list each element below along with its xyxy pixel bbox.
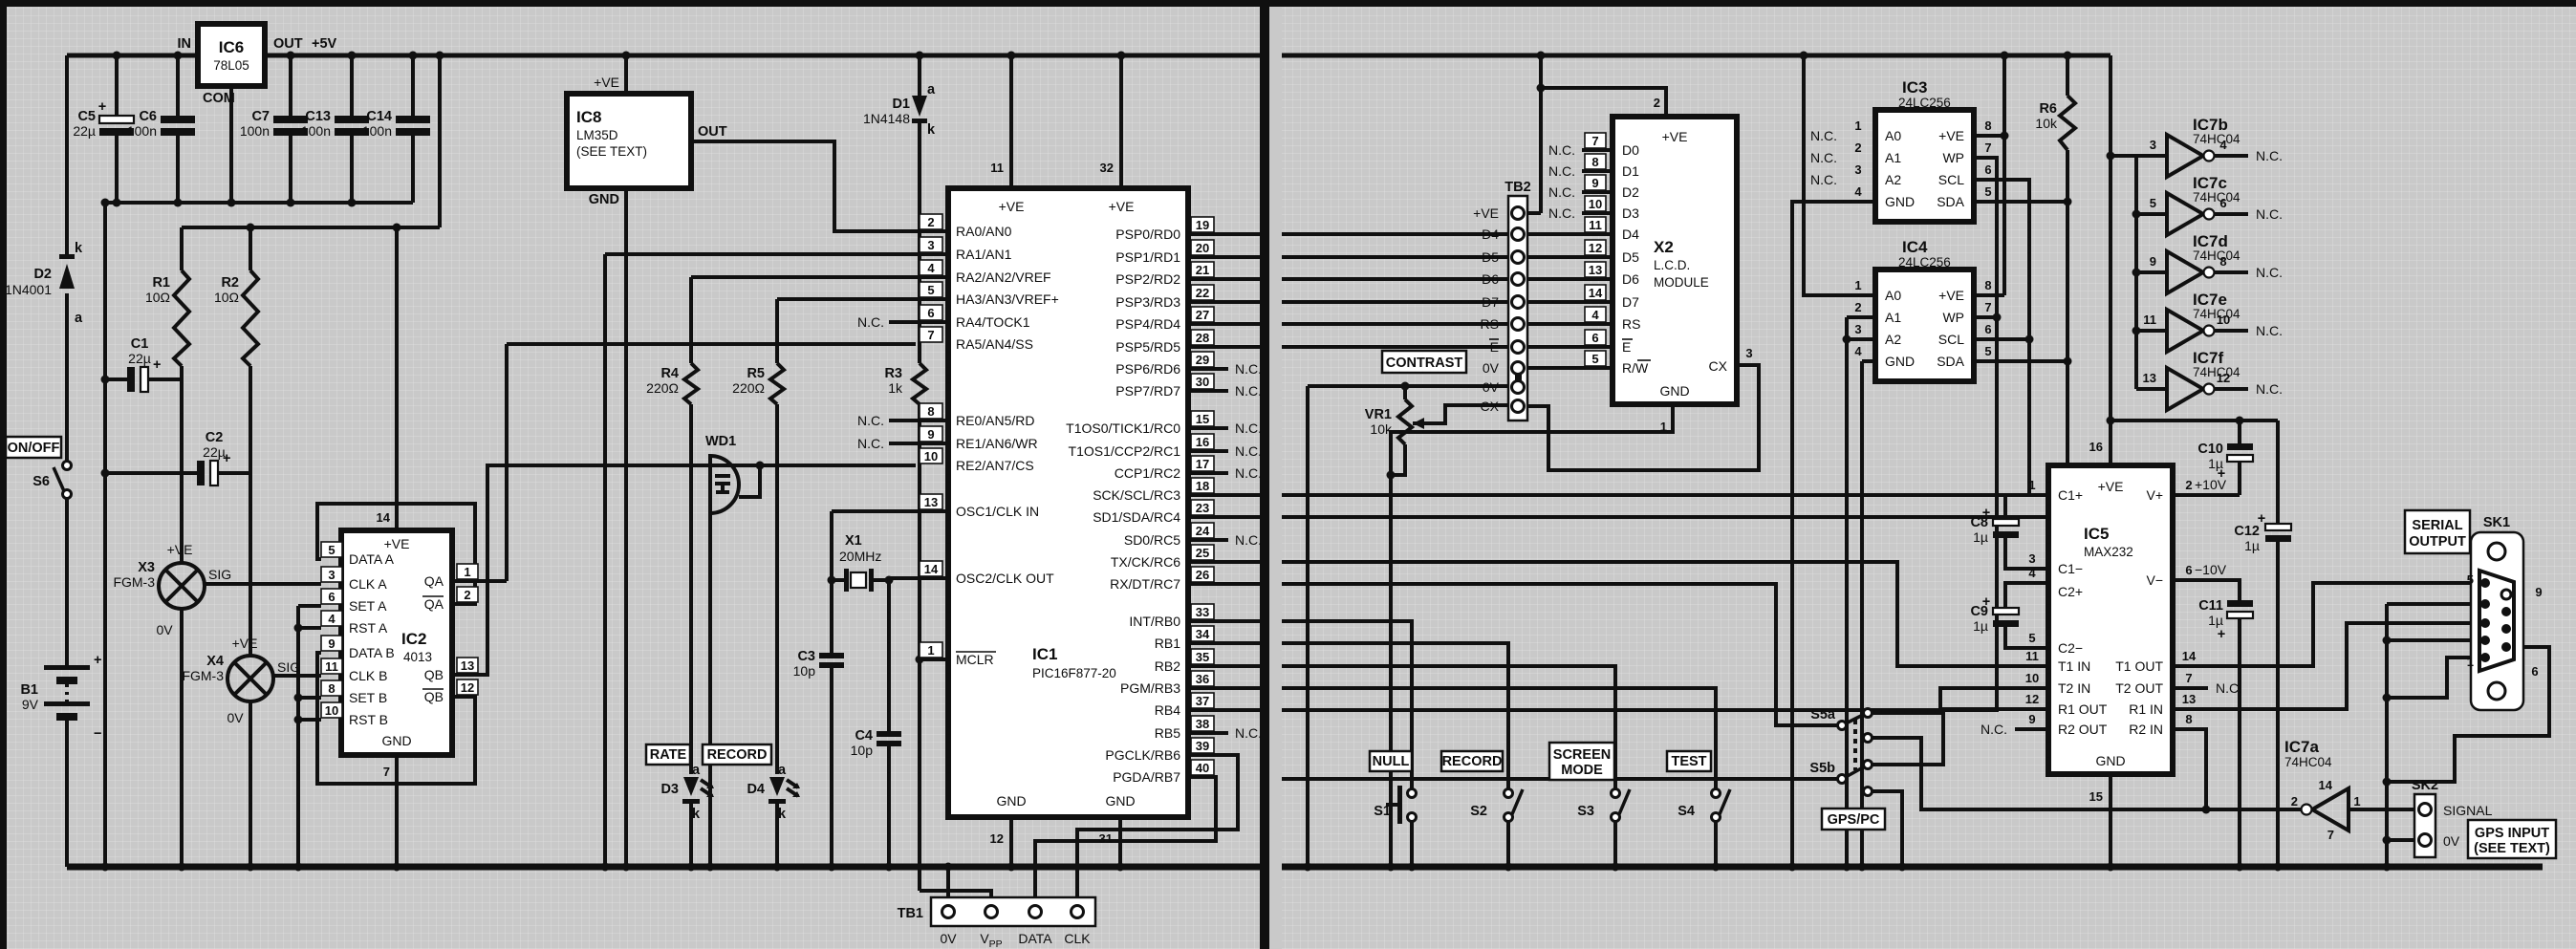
r3-ref: R3 bbox=[884, 366, 902, 381]
svg-text:0V: 0V bbox=[2443, 833, 2460, 849]
svg-text:31: 31 bbox=[1099, 831, 1113, 846]
ic2-p5: 5 bbox=[328, 543, 335, 557]
svg-text:PSP3/RD3: PSP3/RD3 bbox=[1115, 294, 1180, 310]
svg-text:GND: GND bbox=[1885, 354, 1915, 369]
frame-top bbox=[0, 0, 2576, 7]
svg-text:N.C.: N.C. bbox=[2256, 265, 2283, 280]
svg-text:8: 8 bbox=[1984, 119, 1991, 133]
svg-text:RB2: RB2 bbox=[1155, 658, 1180, 674]
b1-plus: + bbox=[94, 653, 101, 668]
vr1-val: 10k bbox=[1370, 421, 1393, 437]
svg-text:N.C.: N.C. bbox=[1235, 383, 1262, 399]
ic2-clka: CLK A bbox=[349, 576, 387, 592]
svg-text:D6: D6 bbox=[1622, 271, 1639, 287]
resistor-r3 bbox=[913, 363, 926, 404]
wd1-ref: WD1 bbox=[705, 434, 736, 449]
svg-text:GND: GND bbox=[1659, 383, 1689, 399]
schematic-canvas: IC6 78L05 IN OUT +5V COM C522µ+ C6100n C… bbox=[0, 0, 2576, 949]
svg-text:15: 15 bbox=[1196, 412, 1209, 426]
ic2-p9: 9 bbox=[328, 636, 335, 651]
x3-val: FGM-3 bbox=[113, 574, 155, 590]
ic2-p10: 10 bbox=[325, 703, 338, 718]
svg-text:N.C.: N.C. bbox=[2256, 148, 2283, 163]
svg-text:5: 5 bbox=[2028, 631, 2035, 645]
svg-text:7: 7 bbox=[2327, 828, 2334, 842]
svg-text:RECORD: RECORD bbox=[1442, 754, 1503, 769]
svg-text:17: 17 bbox=[1196, 457, 1209, 471]
svg-text:A1: A1 bbox=[1885, 310, 1901, 325]
ic6-com-label: COM bbox=[203, 91, 235, 106]
svg-text:RB4: RB4 bbox=[1155, 702, 1180, 718]
svg-text:24: 24 bbox=[1196, 524, 1210, 538]
svg-text:SCL: SCL bbox=[1938, 332, 1964, 347]
svg-text:R2 IN: R2 IN bbox=[2129, 722, 2163, 737]
svg-text:3: 3 bbox=[1745, 346, 1752, 360]
ic8-out: OUT bbox=[698, 124, 727, 140]
c14-ref: C14 bbox=[366, 109, 392, 124]
svg-text:8: 8 bbox=[1591, 155, 1598, 169]
sk1-body bbox=[2471, 532, 2523, 710]
svg-text:5: 5 bbox=[1591, 352, 1598, 366]
svg-text:PSP2/RD2: PSP2/RD2 bbox=[1115, 271, 1180, 287]
svg-text:E: E bbox=[1490, 339, 1499, 355]
svg-text:D1: D1 bbox=[1622, 163, 1639, 179]
inverter-ic7a bbox=[2302, 788, 2349, 830]
svg-text:S5a: S5a bbox=[1810, 707, 1836, 723]
c1-val: 22µ bbox=[128, 351, 151, 366]
c5-plus: + bbox=[98, 99, 106, 115]
svg-text:N.C.: N.C. bbox=[2256, 323, 2283, 338]
ic2-part: 4013 bbox=[403, 650, 432, 664]
c10-ref: C10 bbox=[2197, 442, 2223, 457]
rate-label: RATE bbox=[650, 747, 687, 763]
svg-text:8: 8 bbox=[2185, 712, 2192, 726]
resistor-r6 bbox=[2060, 96, 2075, 150]
svg-text:T2 OUT: T2 OUT bbox=[2115, 680, 2163, 696]
ic2-p1: 1 bbox=[464, 565, 470, 579]
svg-text:SDA: SDA bbox=[1937, 354, 1964, 369]
svg-text:WP: WP bbox=[1942, 310, 1964, 325]
svg-text:N.C.: N.C. bbox=[1548, 142, 1575, 158]
svg-text:T1OS0/TICK1/RC0: T1OS0/TICK1/RC0 bbox=[1066, 421, 1180, 436]
switch-s4 bbox=[1712, 789, 1731, 822]
capacitor-c4 bbox=[877, 731, 901, 746]
svg-text:9: 9 bbox=[927, 427, 934, 442]
svg-text:4: 4 bbox=[2219, 138, 2227, 152]
svg-text:40: 40 bbox=[1196, 761, 1209, 775]
capacitor-c1 bbox=[127, 367, 148, 392]
ic2-n14: 14 bbox=[377, 510, 391, 525]
svg-text:D4: D4 bbox=[1622, 226, 1639, 242]
ic2-rsta: RST A bbox=[349, 620, 388, 636]
c12-ref: C12 bbox=[2234, 524, 2260, 539]
svg-text:C2+: C2+ bbox=[2058, 584, 2083, 599]
svg-text:E: E bbox=[1622, 339, 1631, 355]
svg-text:12: 12 bbox=[990, 831, 1004, 846]
svg-text:WP: WP bbox=[1942, 150, 1964, 165]
svg-text:4: 4 bbox=[1854, 184, 1862, 199]
svg-text:GPS/PC: GPS/PC bbox=[1828, 812, 1880, 828]
ic6-out-label: OUT bbox=[273, 36, 303, 52]
ic8-ref: IC8 bbox=[576, 108, 601, 126]
ic8-ve: +VE bbox=[594, 75, 619, 90]
switch-s5b bbox=[1838, 761, 1872, 796]
svg-text:11: 11 bbox=[1589, 218, 1602, 232]
svg-text:D4: D4 bbox=[1482, 226, 1499, 242]
svg-text:39: 39 bbox=[1196, 739, 1209, 753]
svg-text:SDA: SDA bbox=[1937, 194, 1964, 209]
svg-text:N.C.: N.C. bbox=[857, 413, 884, 428]
svg-text:D0: D0 bbox=[1622, 142, 1639, 158]
ic2-setb: SET B bbox=[349, 690, 387, 705]
x3-0v: 0V bbox=[156, 622, 173, 637]
svg-text:RB1: RB1 bbox=[1155, 636, 1180, 651]
svg-text:16: 16 bbox=[2089, 440, 2103, 454]
svg-text:3: 3 bbox=[1854, 322, 1861, 336]
svg-text:8: 8 bbox=[1984, 278, 1991, 292]
ic2-clkb: CLK B bbox=[349, 668, 387, 683]
ic2-datab: DATA B bbox=[349, 645, 395, 660]
svg-text:MCLR: MCLR bbox=[956, 652, 994, 667]
r6-ref: R6 bbox=[2039, 101, 2057, 117]
x4-0v: 0V bbox=[227, 710, 244, 725]
svg-text:PGM/RB3: PGM/RB3 bbox=[1120, 680, 1180, 696]
svg-text:1: 1 bbox=[2028, 478, 2035, 492]
ic2-ve: +VE bbox=[384, 536, 410, 551]
svg-text:OSC1/CLK IN: OSC1/CLK IN bbox=[956, 504, 1039, 519]
c5-ref: C5 bbox=[77, 109, 96, 124]
tb2-0v-link bbox=[1515, 374, 1522, 382]
svg-text:D2: D2 bbox=[1622, 184, 1639, 200]
svg-text:D3: D3 bbox=[1622, 205, 1639, 221]
svg-text:+: + bbox=[1982, 594, 1990, 610]
x1-val: 20MHz bbox=[839, 549, 881, 564]
svg-text:V−: V− bbox=[2146, 572, 2163, 588]
ic2-qa: QA bbox=[424, 573, 444, 589]
svg-text:S1: S1 bbox=[1374, 804, 1391, 819]
svg-text:PSP4/RD4: PSP4/RD4 bbox=[1115, 316, 1180, 332]
svg-text:S3: S3 bbox=[1577, 804, 1594, 819]
svg-text:N.C.: N.C. bbox=[1235, 465, 1262, 481]
x1-ref: X1 bbox=[845, 533, 862, 549]
svg-text:A1: A1 bbox=[1885, 150, 1901, 165]
svg-text:S2: S2 bbox=[1470, 804, 1487, 819]
svg-text:D6: D6 bbox=[1482, 271, 1499, 287]
ic2-p6: 6 bbox=[328, 590, 335, 604]
svg-text:PSP5/RD5: PSP5/RD5 bbox=[1115, 339, 1180, 355]
capacitor-c11 bbox=[2227, 600, 2253, 618]
battery-b1 bbox=[44, 665, 90, 721]
svg-text:MAX232: MAX232 bbox=[2084, 545, 2133, 559]
svg-text:CX: CX bbox=[1481, 399, 1500, 414]
svg-text:3: 3 bbox=[2150, 138, 2156, 152]
d2-k: k bbox=[75, 241, 83, 256]
svg-text:5: 5 bbox=[2150, 196, 2156, 210]
capacitor-c10 bbox=[2227, 443, 2253, 462]
svg-text:SCL: SCL bbox=[1938, 172, 1964, 187]
d3-ref: D3 bbox=[660, 782, 679, 797]
svg-text:3: 3 bbox=[2028, 551, 2035, 566]
svg-text:15: 15 bbox=[2089, 789, 2103, 804]
ic1-part: PIC16F877-20 bbox=[1032, 666, 1116, 680]
svg-text:24LC256: 24LC256 bbox=[1898, 255, 1951, 270]
svg-text:11: 11 bbox=[990, 161, 1004, 175]
contrast-label: CONTRAST bbox=[1386, 356, 1463, 371]
ic2-p12: 12 bbox=[461, 680, 474, 695]
svg-text:CLK: CLK bbox=[1064, 931, 1091, 946]
svg-text:1µ: 1µ bbox=[2208, 613, 2223, 628]
svg-text:10: 10 bbox=[2025, 671, 2039, 685]
d1-ref: D1 bbox=[892, 97, 910, 112]
c4-val: 10p bbox=[851, 743, 874, 758]
switch-s2 bbox=[1504, 789, 1524, 822]
svg-text:1µ: 1µ bbox=[1973, 618, 1988, 634]
svg-text:S5b: S5b bbox=[1809, 761, 1835, 776]
ic2-p11: 11 bbox=[325, 659, 338, 674]
svg-text:L.C.D.: L.C.D. bbox=[1654, 258, 1690, 272]
svg-text:+VE: +VE bbox=[1473, 205, 1499, 221]
r5-val: 220Ω bbox=[732, 380, 765, 396]
svg-text:N.C.: N.C. bbox=[1235, 532, 1262, 548]
r3-val: 1k bbox=[888, 380, 903, 396]
svg-text:1: 1 bbox=[2353, 794, 2360, 809]
svg-text:S4: S4 bbox=[1678, 804, 1695, 819]
svg-text:T1 OUT: T1 OUT bbox=[2115, 658, 2163, 674]
svg-text:MODULE: MODULE bbox=[1654, 275, 1709, 290]
svg-text:C1+: C1+ bbox=[2058, 487, 2083, 503]
svg-text:74HC04: 74HC04 bbox=[2193, 132, 2240, 146]
svg-text:T2 IN: T2 IN bbox=[2058, 680, 2090, 696]
led-d4 bbox=[768, 777, 800, 804]
b1-ref: B1 bbox=[20, 682, 38, 698]
svg-text:GND: GND bbox=[1885, 194, 1915, 209]
svg-text:RB5: RB5 bbox=[1155, 725, 1180, 741]
ic2-p4: 4 bbox=[328, 612, 336, 626]
svg-text:N.C.: N.C. bbox=[1548, 205, 1575, 221]
crystal-x1 bbox=[844, 569, 874, 592]
c11-ref: C11 bbox=[2198, 598, 2223, 614]
d1-k: k bbox=[927, 122, 936, 138]
svg-text:RX/DT/RC7: RX/DT/RC7 bbox=[1110, 576, 1180, 592]
x2-ref: X2 bbox=[1654, 238, 1674, 256]
svg-text:2: 2 bbox=[1854, 140, 1861, 155]
ic5-ref: IC5 bbox=[2084, 525, 2109, 543]
d4-ref: D4 bbox=[747, 782, 765, 797]
svg-text:N.C.: N.C. bbox=[857, 436, 884, 451]
svg-text:CCP1/RC2: CCP1/RC2 bbox=[1115, 465, 1180, 481]
c7-val: 100n bbox=[240, 123, 270, 139]
svg-text:+: + bbox=[2258, 511, 2265, 527]
svg-text:1: 1 bbox=[1854, 119, 1861, 133]
svg-text:R1 OUT: R1 OUT bbox=[2058, 701, 2108, 717]
svg-text:7: 7 bbox=[927, 328, 934, 342]
svg-text:+VE: +VE bbox=[1662, 129, 1688, 144]
svg-text:5: 5 bbox=[927, 283, 934, 297]
x3-sig: SIG bbox=[208, 567, 231, 582]
c13-ref: C13 bbox=[305, 109, 331, 124]
ic6-in-label: IN bbox=[178, 36, 192, 52]
p10v-label: +10V bbox=[2195, 477, 2227, 492]
resistor-r4 bbox=[684, 363, 698, 404]
svg-text:A2: A2 bbox=[1885, 332, 1901, 347]
d4-a: a bbox=[778, 763, 787, 778]
svg-text:RA4/TOCK1: RA4/TOCK1 bbox=[956, 314, 1030, 330]
svg-text:D7: D7 bbox=[1622, 294, 1639, 310]
svg-text:10: 10 bbox=[924, 449, 938, 464]
svg-text:16: 16 bbox=[1196, 435, 1209, 449]
capacitor-c14 bbox=[396, 116, 430, 136]
svg-text:N.C.: N.C. bbox=[1235, 443, 1262, 459]
svg-text:C1−: C1− bbox=[2058, 561, 2083, 576]
svg-text:HA3/AN3/VREF+: HA3/AN3/VREF+ bbox=[956, 291, 1059, 307]
svg-text:N.C.: N.C. bbox=[857, 314, 884, 330]
x3-ref: X3 bbox=[138, 560, 155, 575]
svg-text:D5: D5 bbox=[1622, 249, 1639, 265]
svg-text:N.C.: N.C. bbox=[1548, 163, 1575, 179]
svg-text:4: 4 bbox=[2028, 566, 2036, 580]
ic2-dataa: DATA A bbox=[349, 551, 395, 567]
svg-text:+VE: +VE bbox=[1938, 288, 1964, 303]
svg-text:+VE: +VE bbox=[1938, 128, 1964, 143]
c2-plus: + bbox=[223, 451, 230, 466]
ic4-ref: IC4 bbox=[1902, 238, 1928, 256]
svg-text:RS: RS bbox=[1622, 316, 1640, 332]
svg-text:SCREEN: SCREEN bbox=[1553, 747, 1611, 763]
svg-text:2: 2 bbox=[2291, 794, 2298, 809]
x2-rw: R/W bbox=[1622, 360, 1649, 376]
svg-text:(SEE TEXT): (SEE TEXT) bbox=[2474, 841, 2550, 856]
r1-ref: R1 bbox=[152, 275, 170, 291]
c1-ref: C1 bbox=[131, 336, 149, 352]
svg-text:2: 2 bbox=[927, 215, 934, 229]
svg-text:24LC256: 24LC256 bbox=[1898, 96, 1951, 110]
svg-text:6: 6 bbox=[1984, 162, 1991, 177]
svg-text:N.C.: N.C. bbox=[1810, 128, 1837, 143]
page-gap bbox=[1269, 0, 1282, 949]
svg-text:4: 4 bbox=[927, 261, 935, 275]
svg-text:7: 7 bbox=[1984, 300, 1991, 314]
svg-text:4: 4 bbox=[1854, 344, 1862, 358]
ic8-note: (SEE TEXT) bbox=[576, 144, 647, 159]
switch-s3 bbox=[1612, 789, 1631, 822]
svg-text:10: 10 bbox=[1589, 197, 1602, 211]
svg-text:4: 4 bbox=[1591, 308, 1599, 322]
svg-text:13: 13 bbox=[924, 495, 938, 509]
svg-text:RE2/AN7/CS: RE2/AN7/CS bbox=[956, 458, 1034, 473]
svg-text:12: 12 bbox=[2217, 371, 2230, 385]
r4-val: 220Ω bbox=[646, 380, 679, 396]
svg-text:6: 6 bbox=[2531, 664, 2538, 679]
s6-ref: S6 bbox=[32, 474, 50, 489]
ic2-p13: 13 bbox=[461, 658, 474, 673]
svg-text:9: 9 bbox=[1591, 176, 1598, 190]
ic2-qb: QB bbox=[424, 667, 444, 682]
ic8-gnd: GND bbox=[589, 192, 619, 207]
c13-val: 100n bbox=[301, 123, 331, 139]
x3-ve: +VE bbox=[167, 542, 193, 557]
svg-text:9: 9 bbox=[2535, 585, 2542, 599]
svg-text:R1 IN: R1 IN bbox=[2129, 701, 2163, 717]
svg-text:T1 IN: T1 IN bbox=[2058, 658, 2090, 674]
svg-text:INT/RB0: INT/RB0 bbox=[1129, 614, 1180, 629]
svg-text:1µ: 1µ bbox=[1973, 529, 1988, 545]
c5-val: 22µ bbox=[73, 123, 96, 139]
svg-text:13: 13 bbox=[1589, 263, 1602, 277]
svg-text:SERIAL: SERIAL bbox=[2412, 518, 2462, 533]
svg-text:1: 1 bbox=[927, 643, 934, 658]
ic2-qabar: QA bbox=[424, 596, 444, 612]
r6-val: 10k bbox=[2035, 116, 2058, 131]
b1-minus: − bbox=[94, 726, 101, 742]
svg-text:DATA: DATA bbox=[1018, 931, 1052, 946]
ic2-seta: SET A bbox=[349, 598, 387, 614]
onoff-label: ON/OFF bbox=[8, 441, 60, 456]
svg-text:37: 37 bbox=[1196, 694, 1209, 708]
svg-text:CX: CX bbox=[1709, 358, 1728, 374]
d1-a: a bbox=[927, 82, 936, 97]
svg-text:PGDA/RB7: PGDA/RB7 bbox=[1113, 769, 1180, 785]
record-led-label: RECORD bbox=[707, 747, 768, 763]
ic3-ref: IC3 bbox=[1902, 78, 1927, 97]
sk2-ref: SK2 bbox=[2412, 778, 2438, 793]
sensor-x3 bbox=[159, 563, 205, 609]
svg-text:27: 27 bbox=[1196, 308, 1209, 322]
svg-text:PSP0/RD0: PSP0/RD0 bbox=[1115, 226, 1180, 242]
c3-val: 10p bbox=[793, 663, 816, 679]
svg-text:N.C.: N.C. bbox=[1235, 421, 1262, 436]
resistor-r1 bbox=[174, 270, 189, 366]
svg-text:RA0/AN0: RA0/AN0 bbox=[956, 224, 1012, 239]
svg-text:RE0/AN5/RD: RE0/AN5/RD bbox=[956, 413, 1034, 428]
svg-text:N.C.: N.C. bbox=[1810, 150, 1837, 165]
c6-ref: C6 bbox=[139, 109, 157, 124]
c4-ref: C4 bbox=[855, 728, 873, 744]
svg-text:6: 6 bbox=[1591, 331, 1598, 345]
d2-ref: D2 bbox=[33, 267, 52, 282]
x4-val: FGM-3 bbox=[182, 668, 224, 683]
svg-text:7: 7 bbox=[2185, 671, 2192, 685]
svg-text:9: 9 bbox=[2150, 254, 2156, 269]
svg-text:SD1/SDA/RC4: SD1/SDA/RC4 bbox=[1093, 509, 1180, 525]
svg-text:+: + bbox=[2218, 627, 2225, 642]
d3-a: a bbox=[692, 763, 701, 778]
svg-text:0V: 0V bbox=[1483, 379, 1500, 395]
svg-text:GPS INPUT: GPS INPUT bbox=[2475, 826, 2549, 841]
svg-text:21: 21 bbox=[1196, 263, 1209, 277]
svg-text:34: 34 bbox=[1196, 627, 1210, 641]
svg-text:30: 30 bbox=[1196, 375, 1209, 389]
ic2-rstb: RST B bbox=[349, 712, 388, 727]
c2-ref: C2 bbox=[206, 430, 224, 445]
capacitor-c6 bbox=[161, 116, 195, 136]
svg-text:6: 6 bbox=[927, 306, 934, 320]
svg-text:OSC2/CLK OUT: OSC2/CLK OUT bbox=[956, 571, 1054, 586]
svg-text:23: 23 bbox=[1196, 501, 1209, 515]
svg-text:RA2/AN2/VREF: RA2/AN2/VREF bbox=[956, 270, 1051, 285]
svg-text:6: 6 bbox=[2185, 563, 2192, 577]
svg-text:18: 18 bbox=[1196, 479, 1209, 493]
svg-text:29: 29 bbox=[1196, 353, 1209, 367]
ic2-p2: 2 bbox=[464, 588, 470, 602]
svg-text:3: 3 bbox=[927, 238, 934, 252]
svg-text:5: 5 bbox=[1984, 344, 1991, 358]
svg-text:1µ: 1µ bbox=[2244, 538, 2260, 553]
svg-text:NULL: NULL bbox=[1373, 754, 1410, 769]
r2-ref: R2 bbox=[221, 275, 239, 291]
svg-text:9: 9 bbox=[2028, 712, 2035, 726]
ic8-part: LM35D bbox=[576, 128, 618, 142]
svg-text:A2: A2 bbox=[1885, 172, 1901, 187]
